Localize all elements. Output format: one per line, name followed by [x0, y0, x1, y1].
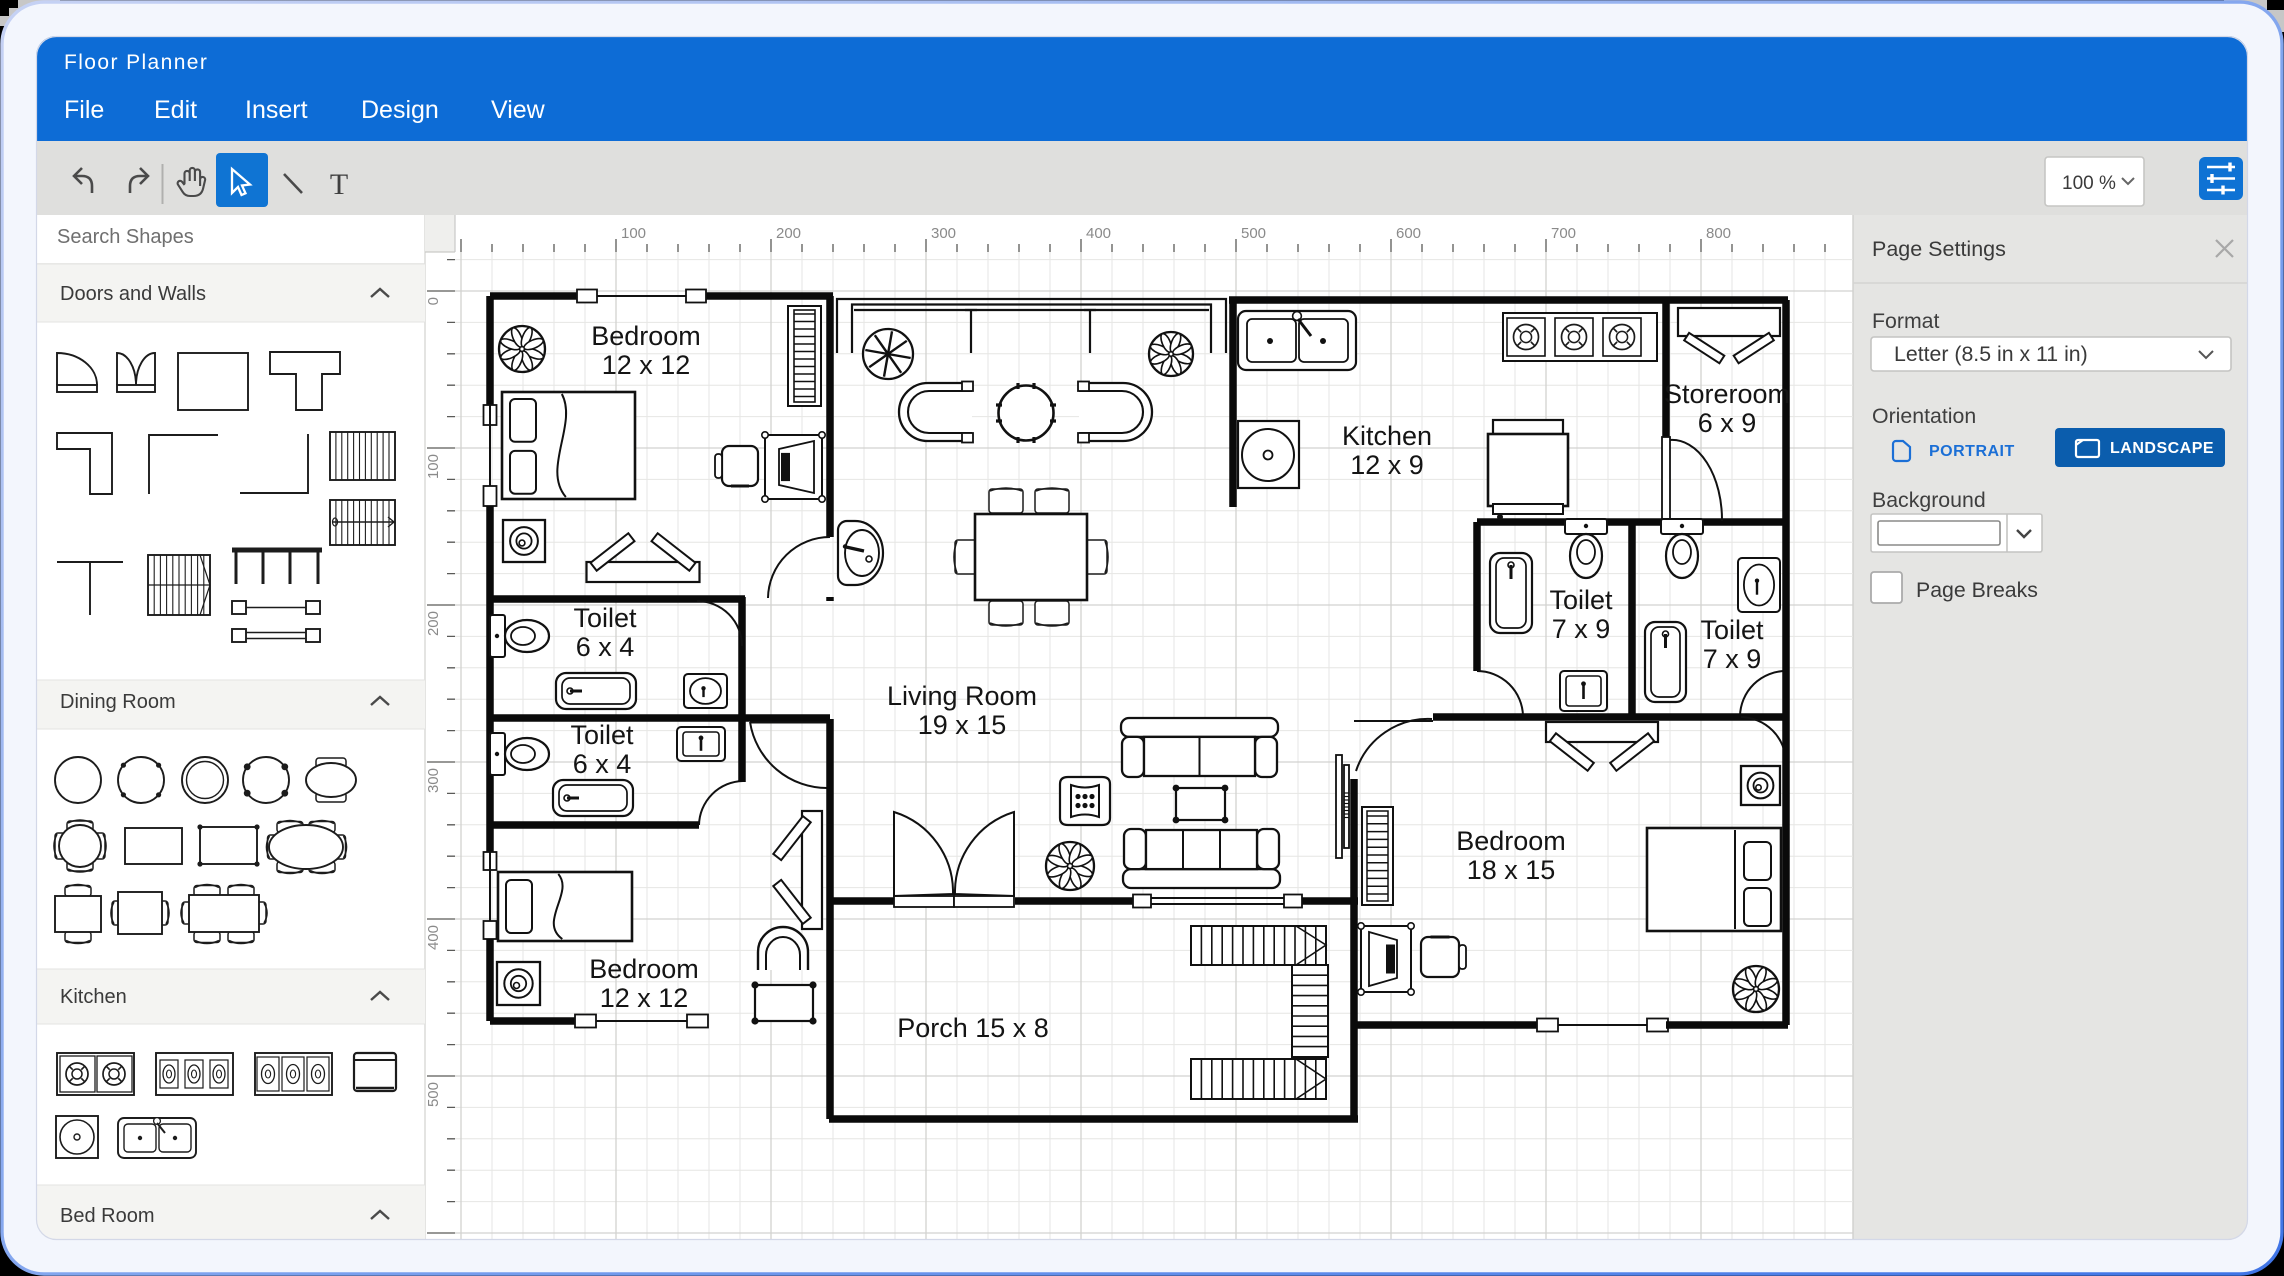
svg-text:Bedroom: Bedroom — [589, 954, 699, 984]
svg-text:Doors and Walls: Doors and Walls — [60, 283, 206, 305]
svg-text:6 x 4: 6 x 4 — [576, 632, 635, 662]
svg-text:Toilet: Toilet — [1549, 585, 1613, 615]
svg-text:Format: Format — [1872, 309, 1940, 333]
svg-text:Orientation: Orientation — [1872, 404, 1976, 428]
svg-text:0: 0 — [425, 297, 442, 305]
svg-text:12 x 12: 12 x 12 — [600, 983, 689, 1013]
svg-text:Kitchen: Kitchen — [1342, 421, 1432, 451]
svg-text:Toilet: Toilet — [570, 720, 634, 750]
svg-text:Page Settings: Page Settings — [1872, 237, 2006, 261]
svg-text:Design: Design — [361, 96, 439, 124]
svg-text:18 x 15: 18 x 15 — [1467, 855, 1556, 885]
svg-text:500: 500 — [425, 1082, 442, 1107]
svg-text:7 x 9: 7 x 9 — [1552, 614, 1611, 644]
svg-text:Search Shapes: Search Shapes — [57, 226, 194, 248]
svg-text:200: 200 — [776, 225, 801, 242]
svg-text:100: 100 — [621, 225, 646, 242]
svg-text:Page Breaks: Page Breaks — [1916, 578, 2038, 602]
svg-text:800: 800 — [1706, 225, 1731, 242]
svg-text:Background: Background — [1872, 488, 1986, 512]
svg-text:Living Room: Living Room — [887, 681, 1037, 711]
svg-text:700: 700 — [1551, 225, 1576, 242]
svg-text:12 x 9: 12 x 9 — [1350, 450, 1424, 480]
svg-text:Storeroom: Storeroom — [1664, 379, 1790, 409]
svg-text:Letter (8.5 in x 11 in): Letter (8.5 in x 11 in) — [1894, 342, 2088, 366]
svg-text:View: View — [491, 96, 546, 124]
svg-text:Floor Planner: Floor Planner — [64, 51, 208, 74]
svg-text:Porch 15 x 8: Porch 15 x 8 — [897, 1013, 1049, 1043]
svg-text:600: 600 — [1396, 225, 1421, 242]
svg-text:400: 400 — [425, 925, 442, 950]
svg-text:Kitchen: Kitchen — [60, 986, 127, 1008]
svg-text:LANDSCAPE: LANDSCAPE — [2110, 440, 2214, 457]
svg-text:Toilet: Toilet — [573, 603, 637, 633]
svg-text:Insert: Insert — [245, 96, 308, 124]
svg-text:300: 300 — [425, 768, 442, 793]
svg-text:File: File — [64, 96, 104, 124]
svg-text:300: 300 — [931, 225, 956, 242]
svg-text:Bedroom: Bedroom — [1456, 826, 1566, 856]
svg-text:Bedroom: Bedroom — [591, 321, 701, 351]
svg-text:Dining Room: Dining Room — [60, 691, 176, 713]
svg-text:PORTRAIT: PORTRAIT — [1929, 443, 2015, 460]
svg-text:12 x 12: 12 x 12 — [602, 350, 691, 380]
svg-text:19 x 15: 19 x 15 — [918, 710, 1007, 740]
svg-text:7 x 9: 7 x 9 — [1703, 644, 1762, 674]
svg-text:400: 400 — [1086, 225, 1111, 242]
svg-text:Bed Room: Bed Room — [60, 1205, 155, 1227]
svg-text:Toilet: Toilet — [1700, 615, 1764, 645]
svg-text:500: 500 — [1241, 225, 1266, 242]
svg-text:Edit: Edit — [154, 96, 197, 124]
svg-text:6 x 9: 6 x 9 — [1698, 408, 1757, 438]
svg-text:6 x 4: 6 x 4 — [573, 749, 632, 779]
svg-text:100 %: 100 % — [2062, 173, 2116, 194]
svg-text:T: T — [330, 168, 348, 201]
svg-text:200: 200 — [425, 611, 442, 636]
svg-text:100: 100 — [425, 454, 442, 479]
